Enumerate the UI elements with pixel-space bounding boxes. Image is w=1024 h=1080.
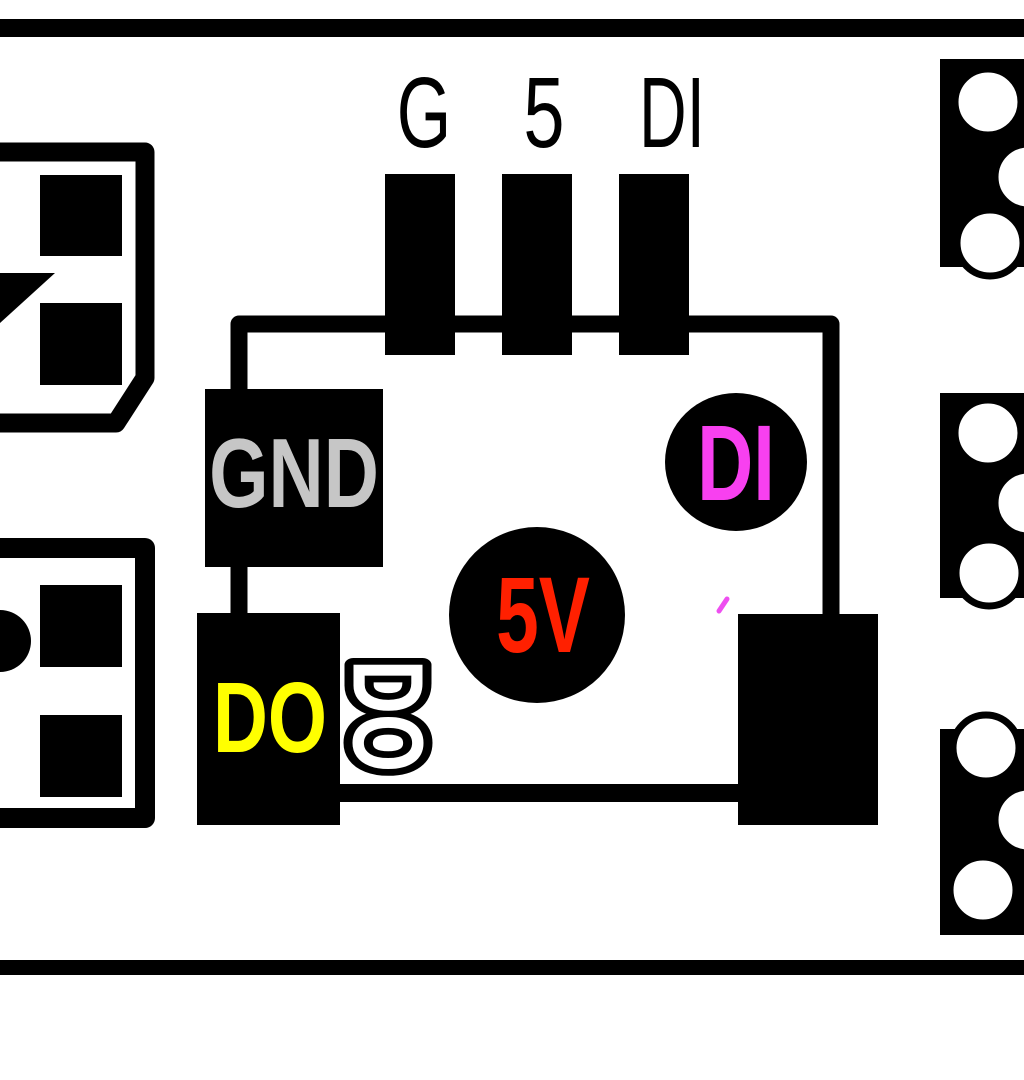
- connector-top-left-contact-2: [40, 303, 122, 385]
- 5v-via: 5V: [449, 527, 625, 703]
- di-via: DI: [665, 393, 807, 531]
- gnd-label: GND: [209, 418, 379, 528]
- board-top-edge: [0, 19, 1024, 37]
- pin-di: [619, 174, 689, 355]
- right-pad-top: [940, 59, 1024, 276]
- pin-label-g: G: [397, 58, 451, 169]
- connector-top-left: [0, 152, 145, 423]
- do-rotated-label: DO: [332, 660, 444, 772]
- pinout-diagram-canvas: G 5 DI GND DO DO 5V DI: [0, 0, 1024, 1080]
- pin-5: [502, 174, 572, 355]
- 5v-label: 5V: [496, 554, 590, 675]
- connector-top-left-contact-1: [40, 175, 122, 256]
- connector-bottom-left-hole: [0, 610, 31, 672]
- right-pad-middle: [940, 393, 1024, 606]
- via-hole: [953, 715, 1019, 781]
- connector-bottom-left: [0, 548, 145, 818]
- board-bottom-edge: [0, 960, 1024, 975]
- board-diagram: G 5 DI GND DO DO 5V DI: [0, 0, 1024, 1080]
- do-label: DO: [213, 662, 327, 773]
- via-hole: [955, 400, 1021, 466]
- via-hole: [956, 540, 1022, 606]
- pin-label-5: 5: [523, 56, 564, 169]
- di-label: DI: [697, 402, 775, 523]
- gnd-pad: GND: [205, 389, 383, 567]
- do-pad: DO: [197, 613, 340, 825]
- via-hole: [950, 857, 1016, 923]
- via-hole: [955, 69, 1021, 135]
- ic-corner-pad: [738, 614, 878, 825]
- connector-bottom-left-contact-1: [40, 585, 122, 667]
- via-hole: [957, 210, 1023, 276]
- stray-mark: [719, 599, 727, 611]
- right-pad-bottom: [940, 715, 1024, 935]
- pin-g: [385, 174, 455, 355]
- pin-label-di: DI: [639, 56, 705, 168]
- connector-bottom-left-contact-2: [40, 715, 122, 797]
